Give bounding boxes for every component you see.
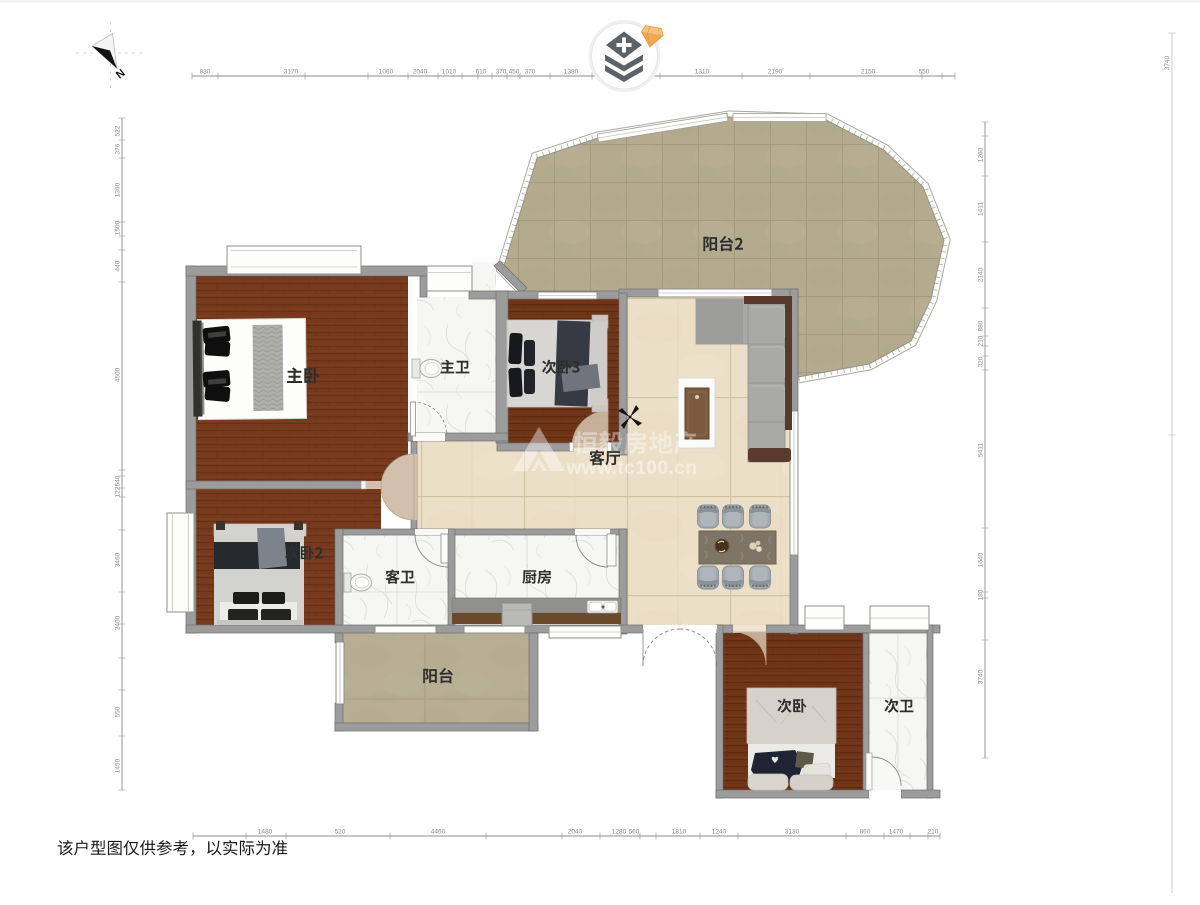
svg-text:830: 830 [200,69,211,76]
svg-text:3130: 3130 [785,829,800,836]
svg-text:2400: 2400 [115,615,122,630]
svg-text:550: 550 [919,69,930,76]
svg-text:440: 440 [115,260,122,271]
svg-text:520: 520 [335,829,346,836]
svg-text:1060: 1060 [379,69,394,76]
svg-text:320: 320 [978,356,985,367]
svg-text:1810: 1810 [672,829,687,836]
svg-text:5411: 5411 [978,443,985,457]
svg-text:1310: 1310 [695,69,710,76]
svg-text:1240: 1240 [712,829,727,836]
svg-text:2140: 2140 [978,267,985,282]
svg-text:4460: 4460 [431,829,446,836]
svg-text:1360: 1360 [115,182,122,197]
svg-text:3460: 3460 [115,552,122,567]
svg-text:122: 122 [115,486,122,497]
svg-text:1480: 1480 [258,829,273,836]
svg-text:610: 610 [476,69,487,76]
svg-text:1470: 1470 [889,829,904,836]
svg-text:180: 180 [978,589,985,600]
svg-text:2190: 2190 [768,69,783,76]
svg-text:1640: 1640 [978,552,985,567]
svg-text:370: 370 [525,69,536,76]
svg-text:450: 450 [509,69,520,76]
svg-text:2040: 2040 [568,829,583,836]
svg-text:860: 860 [860,829,871,836]
svg-text:3740: 3740 [1164,55,1171,70]
svg-text:522: 522 [115,125,122,136]
svg-text:376: 376 [115,143,122,154]
svg-text:1010: 1010 [442,69,457,76]
svg-text:540: 540 [115,475,122,486]
svg-text:1450: 1450 [115,758,122,773]
svg-text:880: 880 [978,320,985,331]
svg-text:3740: 3740 [978,669,985,684]
svg-text:560: 560 [629,829,640,836]
svg-text:4500: 4500 [115,367,122,382]
svg-text:210: 210 [928,829,939,836]
svg-text:2150: 2150 [861,69,876,76]
svg-text:www.tc100.cn: www.tc100.cn [566,458,698,479]
svg-text:550: 550 [115,706,122,717]
svg-text:1260: 1260 [978,147,985,162]
svg-text:1380: 1380 [564,69,579,76]
svg-text:2040: 2040 [413,69,428,76]
svg-text:370: 370 [496,69,507,76]
svg-text:210: 210 [978,335,985,346]
svg-text:1411: 1411 [978,202,985,216]
svg-text:1500: 1500 [115,220,122,235]
svg-text:1280: 1280 [612,829,627,836]
svg-text:3170: 3170 [284,69,299,76]
